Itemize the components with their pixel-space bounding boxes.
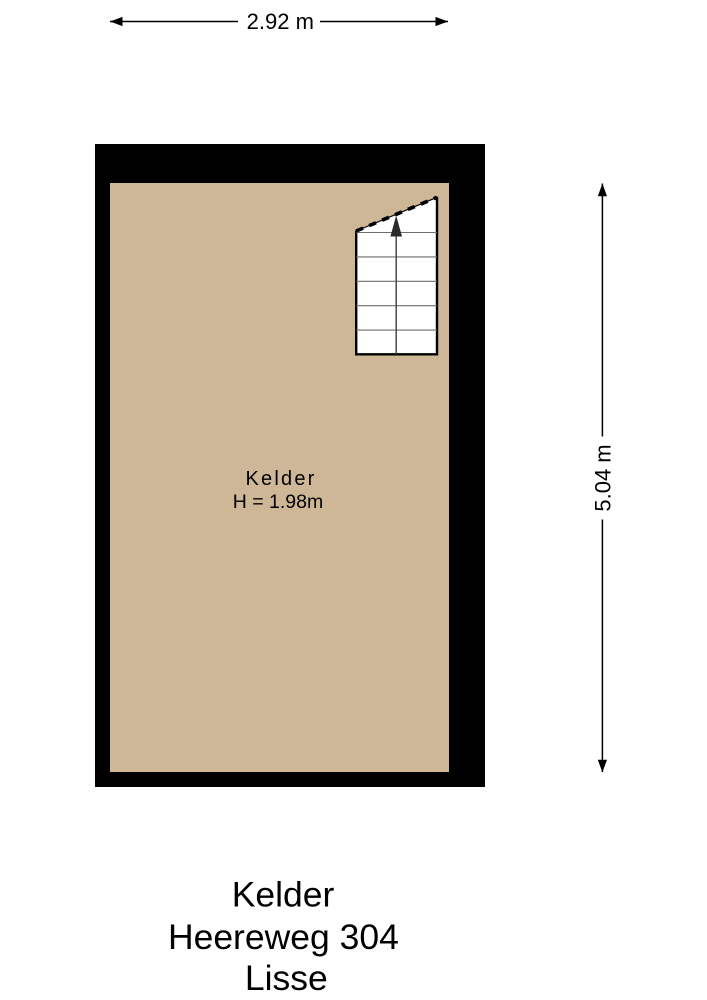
svg-text:2.92 m: 2.92 m	[247, 9, 314, 34]
svg-text:Kelder: Kelder	[245, 468, 316, 490]
svg-text:H = 1.98m: H = 1.98m	[233, 491, 324, 513]
svg-text:Lisse: Lisse	[245, 958, 328, 998]
svg-text:Kelder: Kelder	[232, 875, 335, 915]
svg-text:5.04 m: 5.04 m	[591, 444, 616, 511]
svg-text:Heereweg 304: Heereweg 304	[168, 917, 399, 957]
